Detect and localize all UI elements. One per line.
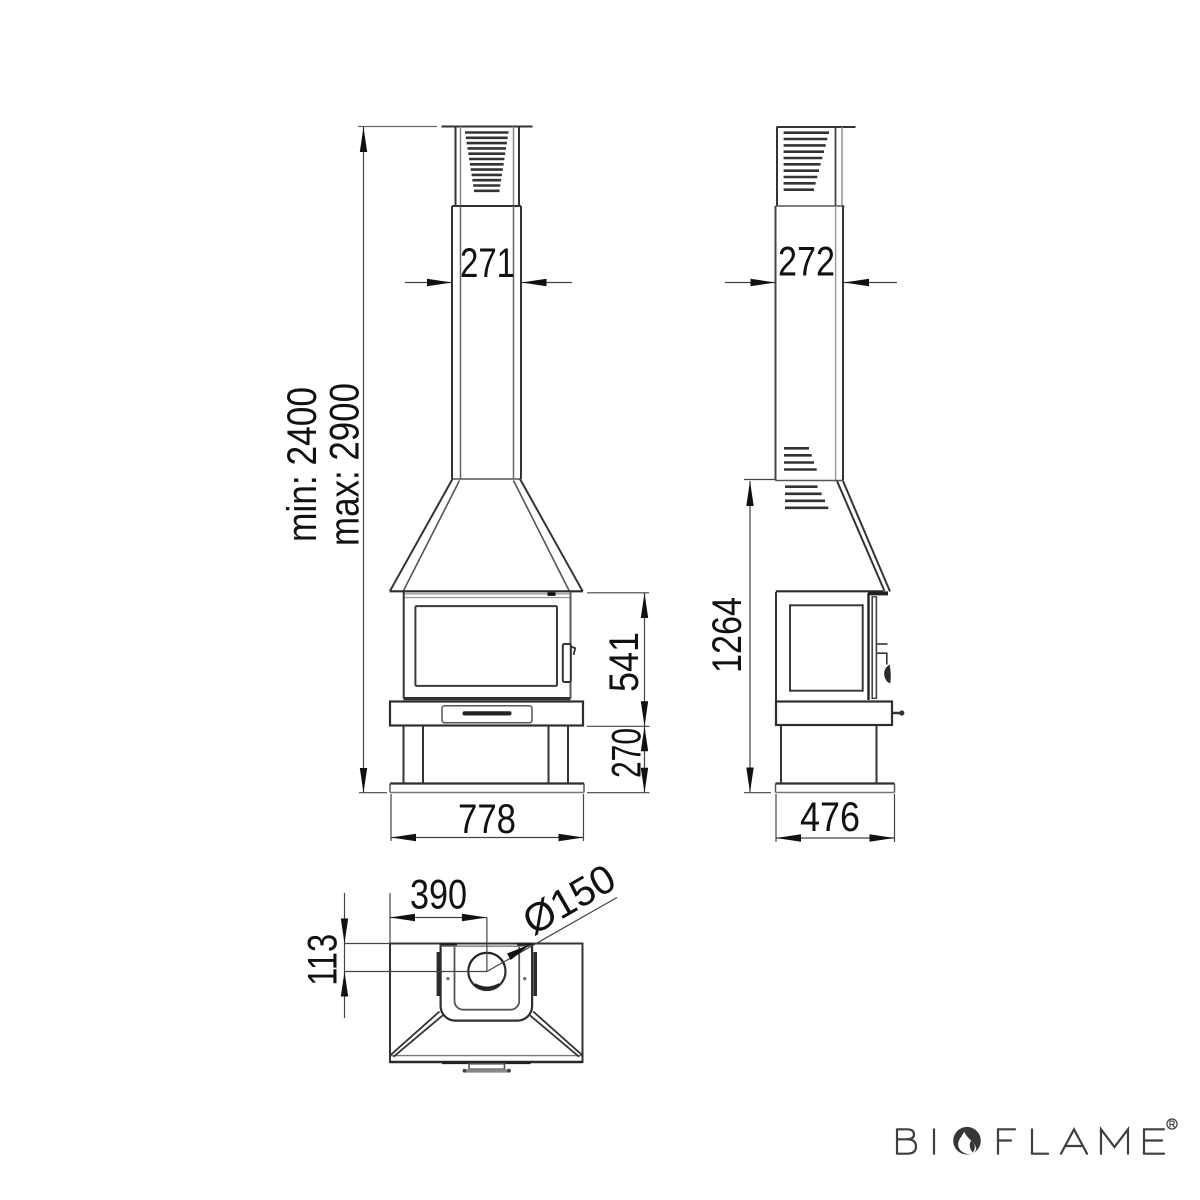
svg-text:272: 272 <box>778 238 835 285</box>
svg-text:min: 2400: min: 2400 <box>278 387 325 542</box>
svg-text:1264: 1264 <box>703 597 750 673</box>
svg-text:476: 476 <box>800 793 860 840</box>
svg-text:max: 2900: max: 2900 <box>321 383 368 546</box>
svg-text:271: 271 <box>460 239 515 286</box>
svg-text:270: 270 <box>603 728 650 778</box>
svg-text:390: 390 <box>410 871 467 918</box>
svg-text:778: 778 <box>458 795 516 842</box>
svg-text:541: 541 <box>600 632 647 692</box>
svg-text:113: 113 <box>299 934 346 986</box>
